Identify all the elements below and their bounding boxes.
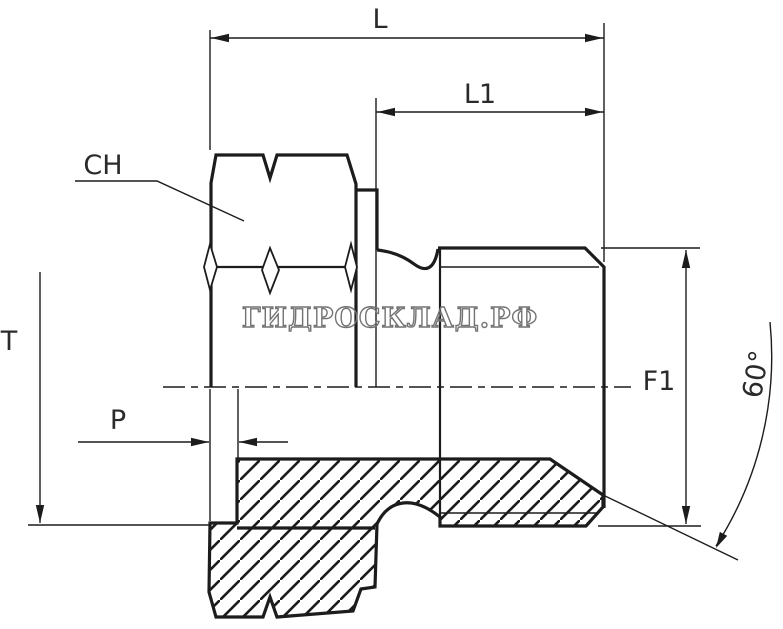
drawing-canvas: L L1 CH T P F1 60° ГИДРОСКЛАД.РФ: [0, 0, 783, 629]
hex-nut-outline: [211, 155, 356, 387]
undercut-groove-curve: [377, 249, 438, 269]
dim-P-arrow-right: [239, 438, 257, 446]
fitting-section-drawing: L L1 CH T P F1 60° ГИДРОСКЛАД.РФ: [0, 0, 783, 629]
dim-L-arrow-right: [585, 34, 603, 42]
dim-F1-arrow-top: [682, 250, 690, 268]
watermark-text: ГИДРОСКЛАД.РФ: [242, 303, 538, 334]
dim-L1-label: L1: [464, 79, 496, 110]
section-hatched-body: [209, 459, 603, 617]
dim-L1-arrow-right: [585, 108, 603, 116]
hex-corner-lens-center: [262, 248, 279, 293]
hex-corner-lens-left: [204, 244, 217, 290]
dim-CH-label: CH: [83, 150, 122, 181]
collar-outline: [356, 190, 377, 250]
dim-P-arrow-left: [191, 438, 209, 446]
dim-L-label: L: [372, 4, 387, 35]
dim-F1-arrow-bottom: [682, 506, 690, 524]
dim-angle-arrow: [716, 532, 727, 548]
dim-L-arrow-left: [211, 34, 229, 42]
dim-F1-label: F1: [643, 366, 676, 397]
dim-T-arrow: [36, 505, 44, 523]
dim-L1-arrow-left: [377, 108, 395, 116]
dim-T-label: T: [0, 326, 18, 357]
dim-CH-leader-line: [75, 181, 244, 221]
cone-extension-line: [603, 495, 738, 560]
dim-P-label: P: [110, 405, 126, 436]
